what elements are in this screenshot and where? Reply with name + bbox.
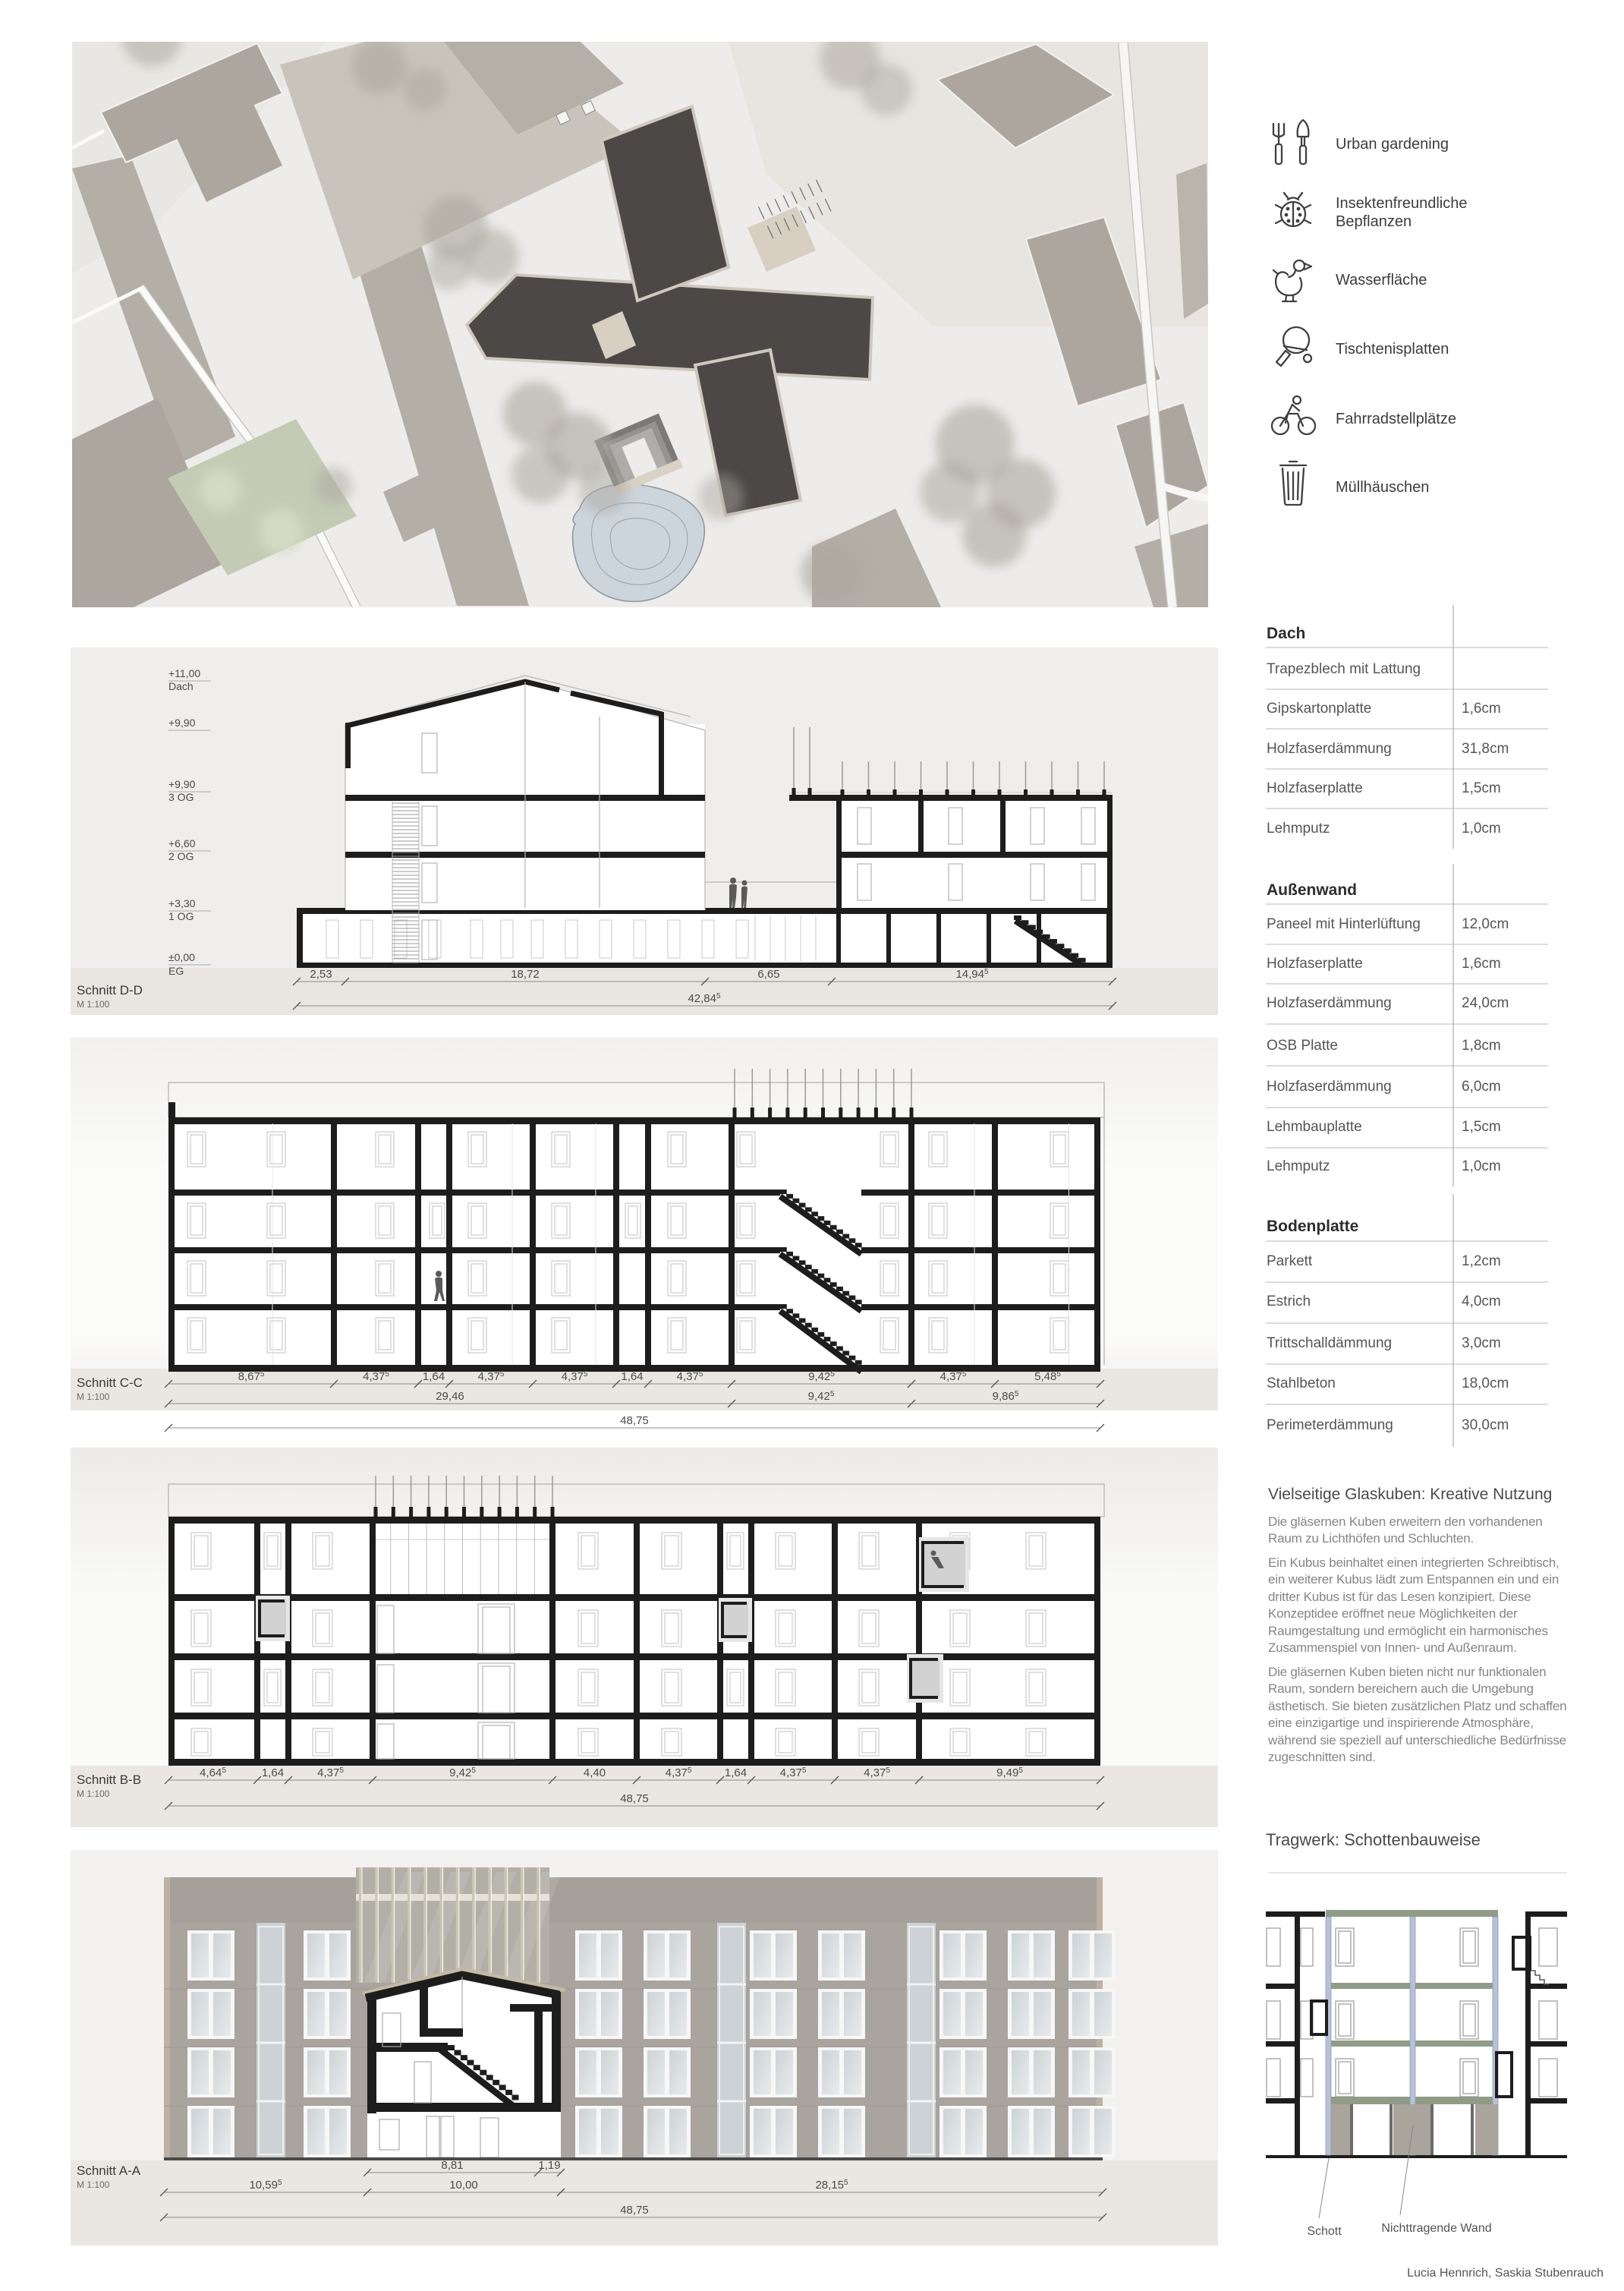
svg-text:2 OG: 2 OG — [168, 850, 194, 862]
svg-text:EG: EG — [168, 965, 184, 977]
svg-text:M 1:100: M 1:100 — [77, 1391, 110, 1402]
svg-text:Lehmbauplatte: Lehmbauplatte — [1267, 1119, 1362, 1135]
svg-text:Urban gardening: Urban gardening — [1336, 136, 1449, 153]
svg-text:3 OG: 3 OG — [168, 791, 194, 803]
svg-text:Schnitt B-B: Schnitt B-B — [77, 1773, 141, 1787]
svg-text:+9,90: +9,90 — [168, 717, 196, 729]
svg-text:Bepflanzen: Bepflanzen — [1336, 213, 1412, 230]
svg-text:Schnitt C-C: Schnitt C-C — [77, 1376, 143, 1390]
svg-text:Lehmputz: Lehmputz — [1267, 821, 1330, 837]
svg-text:10,00: 10,00 — [449, 2179, 478, 2192]
svg-text:Holzfaserdämmung: Holzfaserdämmung — [1267, 1079, 1392, 1095]
svg-text:M 1:100: M 1:100 — [77, 2179, 110, 2190]
svg-text:Dach: Dach — [168, 680, 194, 692]
svg-text:M 1:100: M 1:100 — [77, 1788, 110, 1799]
svg-text:Lehmputz: Lehmputz — [1267, 1158, 1330, 1174]
svg-text:Schnitt D-D: Schnitt D-D — [77, 983, 143, 997]
svg-text:1,5cm: 1,5cm — [1462, 780, 1501, 796]
svg-text:Trittschalldämmung: Trittschalldämmung — [1267, 1335, 1392, 1351]
svg-text:1,5cm: 1,5cm — [1462, 1119, 1501, 1135]
svg-text:+6,60: +6,60 — [168, 837, 196, 849]
svg-text:Holzfaserplatte: Holzfaserplatte — [1267, 780, 1363, 796]
svg-text:6,65: 6,65 — [757, 968, 779, 981]
svg-text:1,6cm: 1,6cm — [1462, 701, 1501, 717]
svg-text:1,2cm: 1,2cm — [1462, 1253, 1501, 1269]
svg-text:Schott: Schott — [1307, 2225, 1342, 2238]
svg-text:+11,00: +11,00 — [168, 667, 200, 679]
svg-text:1,64: 1,64 — [423, 1370, 445, 1383]
svg-text:Bodenplatte: Bodenplatte — [1267, 1218, 1358, 1235]
svg-text:Müllhäuschen: Müllhäuschen — [1336, 479, 1429, 496]
svg-text:31,8cm: 31,8cm — [1462, 741, 1509, 757]
svg-text:18,72: 18,72 — [511, 968, 540, 981]
svg-text:M 1:100: M 1:100 — [77, 999, 110, 1010]
svg-text:Schnitt A-A: Schnitt A-A — [77, 2163, 141, 2178]
svg-text:Fahrradstellplätze: Fahrradstellplätze — [1336, 411, 1456, 427]
svg-text:Wasserfläche: Wasserfläche — [1336, 272, 1427, 288]
svg-text:1 OG: 1 OG — [168, 910, 194, 922]
svg-text:OSB Platte: OSB Platte — [1267, 1038, 1338, 1054]
svg-text:14,945: 14,945 — [955, 968, 989, 981]
svg-text:2,53: 2,53 — [310, 968, 332, 981]
svg-text:Tragwerk: Schottenbauweise: Tragwerk: Schottenbauweise — [1266, 1830, 1481, 1849]
svg-text:1,64: 1,64 — [725, 1766, 747, 1779]
svg-text:Estrich: Estrich — [1267, 1294, 1311, 1309]
svg-text:29,46: 29,46 — [436, 1390, 464, 1403]
svg-text:1,0cm: 1,0cm — [1462, 821, 1501, 837]
svg-text:1,64: 1,64 — [262, 1766, 284, 1779]
svg-text:30,0cm: 30,0cm — [1462, 1417, 1509, 1433]
svg-text:Tischtenisplatten: Tischtenisplatten — [1336, 341, 1449, 358]
svg-text:6,0cm: 6,0cm — [1462, 1079, 1501, 1095]
svg-text:Perimeterdämmung: Perimeterdämmung — [1267, 1417, 1393, 1433]
svg-text:48,75: 48,75 — [620, 2204, 649, 2217]
svg-text:Holzfaserdämmung: Holzfaserdämmung — [1267, 995, 1392, 1011]
svg-text:1,0cm: 1,0cm — [1462, 1158, 1501, 1174]
svg-text:Nichttragende Wand: Nichttragende Wand — [1381, 2222, 1491, 2235]
svg-text:1,8cm: 1,8cm — [1462, 1038, 1501, 1054]
svg-text:Parkett: Parkett — [1267, 1253, 1313, 1269]
svg-text:24,0cm: 24,0cm — [1462, 995, 1509, 1011]
svg-text:12,0cm: 12,0cm — [1462, 916, 1509, 932]
svg-text:Lucia Hennrich, Saskia Stubenr: Lucia Hennrich, Saskia Stubenrauch — [1407, 2267, 1604, 2280]
svg-text:±0,00: ±0,00 — [168, 951, 195, 963]
svg-text:Trapezblech mit Lattung: Trapezblech mit Lattung — [1267, 661, 1421, 677]
svg-text:Holzfaserplatte: Holzfaserplatte — [1267, 956, 1363, 972]
svg-text:1,64: 1,64 — [621, 1370, 643, 1383]
svg-text:1,6cm: 1,6cm — [1462, 956, 1501, 972]
svg-text:Holzfaserdämmung: Holzfaserdämmung — [1267, 741, 1392, 757]
svg-text:10,595: 10,595 — [249, 2179, 282, 2192]
svg-text:Außenwand: Außenwand — [1267, 881, 1357, 899]
svg-text:42,845: 42,845 — [688, 992, 721, 1005]
svg-text:Insektenfreundliche: Insektenfreundliche — [1336, 195, 1467, 212]
svg-text:Gipskartonplatte: Gipskartonplatte — [1267, 701, 1371, 717]
svg-text:4,40: 4,40 — [584, 1766, 606, 1779]
svg-text:28,155: 28,155 — [815, 2179, 848, 2192]
svg-text:48,75: 48,75 — [620, 1414, 649, 1427]
svg-text:3,0cm: 3,0cm — [1462, 1335, 1501, 1351]
svg-text:48,75: 48,75 — [620, 1792, 649, 1805]
svg-text:Stahlbeton: Stahlbeton — [1267, 1376, 1336, 1391]
svg-text:4,0cm: 4,0cm — [1462, 1294, 1501, 1309]
svg-text:1,19: 1,19 — [538, 2159, 560, 2172]
svg-text:+3,30: +3,30 — [168, 897, 196, 909]
svg-text:Paneel mit Hinterlüftung: Paneel mit Hinterlüftung — [1267, 916, 1421, 932]
svg-text:18,0cm: 18,0cm — [1462, 1376, 1509, 1391]
svg-text:+9,90: +9,90 — [168, 778, 196, 790]
svg-text:Dach: Dach — [1267, 625, 1305, 642]
svg-text:8,81: 8,81 — [441, 2159, 463, 2172]
